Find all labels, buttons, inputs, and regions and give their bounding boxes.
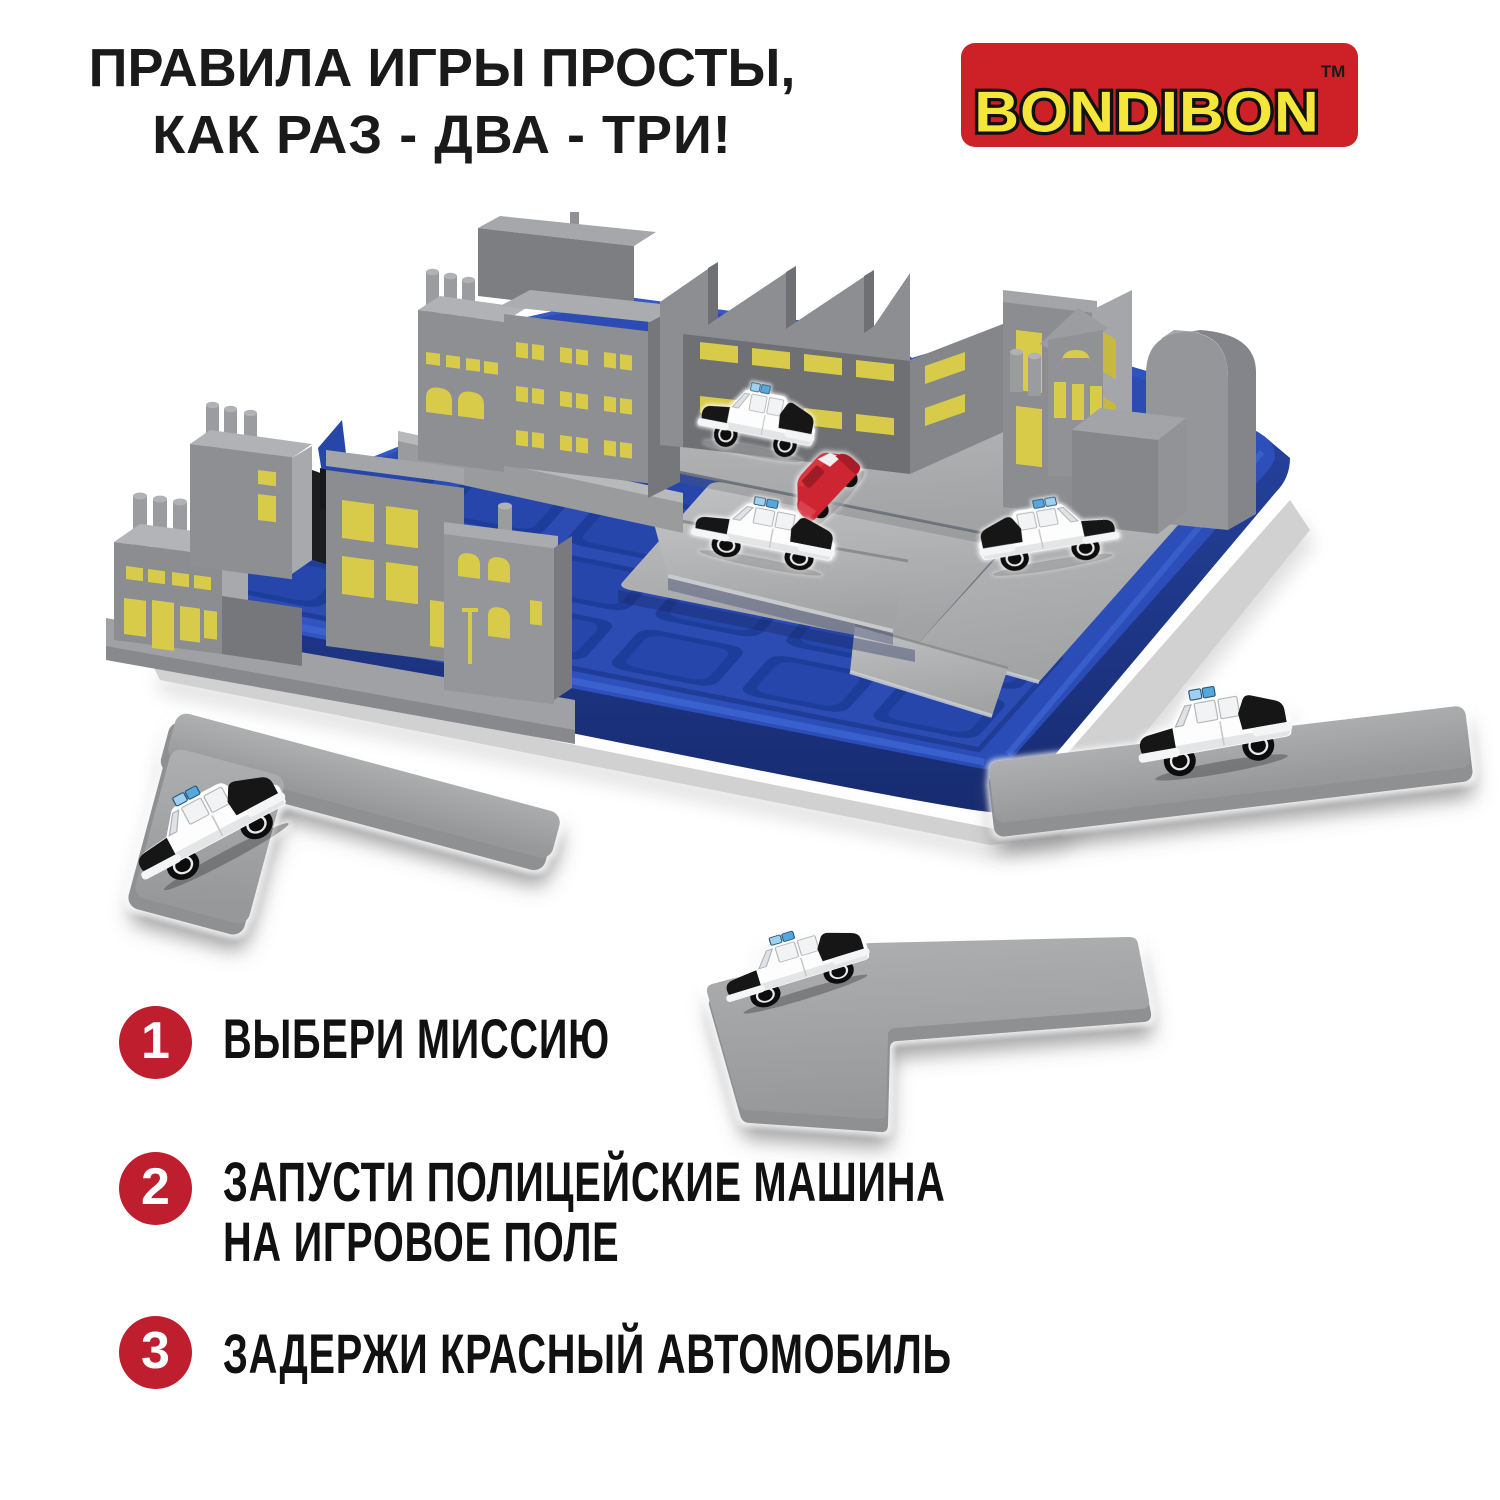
- svg-text:TM: TM: [1321, 62, 1346, 81]
- svg-text:BONDIBON: BONDIBON: [974, 80, 1320, 144]
